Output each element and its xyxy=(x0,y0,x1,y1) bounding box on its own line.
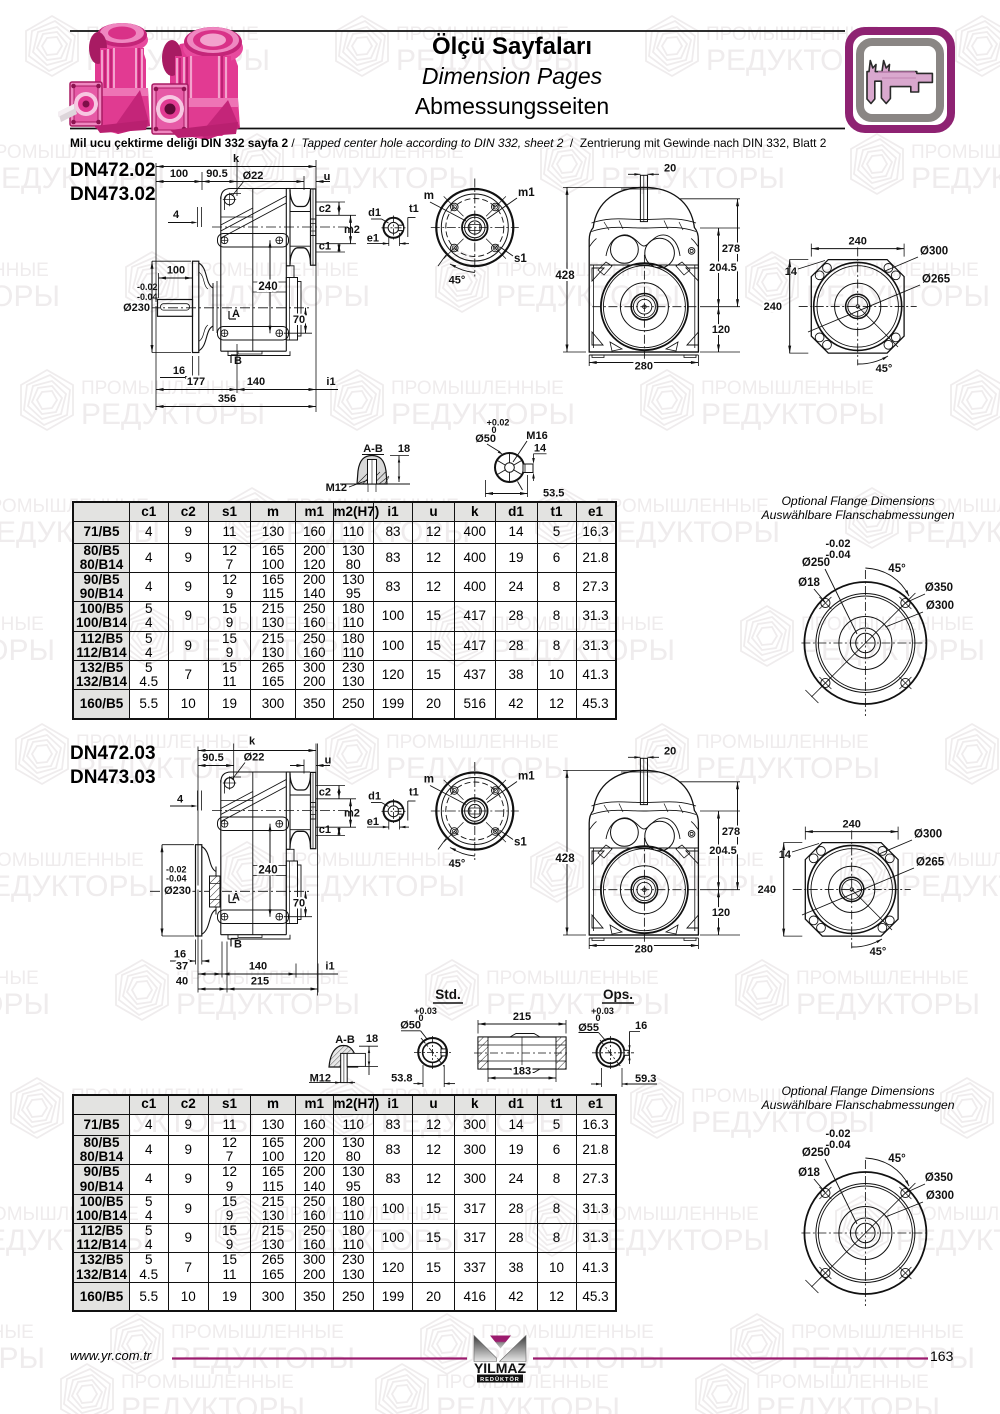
svg-text:k: k xyxy=(233,153,240,165)
svg-text:-0.04: -0.04 xyxy=(166,874,187,884)
svg-text:16: 16 xyxy=(635,1020,647,1032)
svg-text:16: 16 xyxy=(174,949,186,961)
svg-text:204.5: 204.5 xyxy=(709,845,737,857)
svg-text:РЕДУКТОРЫ: РЕДУКТОРЫ xyxy=(801,634,985,667)
svg-text:i1: i1 xyxy=(326,376,335,388)
svg-text:YILMAZ: YILMAZ xyxy=(474,1360,527,1376)
svg-text:Ø230: Ø230 xyxy=(123,302,150,314)
svg-text:40: 40 xyxy=(176,976,188,988)
svg-text:-0.02: -0.02 xyxy=(137,282,158,292)
svg-text:Ø265: Ø265 xyxy=(916,857,945,869)
svg-text:РЕДУКТОРЫ: РЕДУКТОРЫ xyxy=(0,988,50,1021)
svg-text:B: B xyxy=(234,355,242,367)
svg-text:70: 70 xyxy=(293,898,305,910)
svg-text:u: u xyxy=(324,171,331,183)
svg-text:m1: m1 xyxy=(518,187,535,199)
svg-text:s1: s1 xyxy=(514,837,527,849)
svg-text:m2: m2 xyxy=(344,808,360,820)
svg-text:-0.04: -0.04 xyxy=(137,292,158,302)
svg-text:53.5: 53.5 xyxy=(543,488,564,500)
svg-text:Ø265: Ø265 xyxy=(922,274,951,286)
svg-text:215: 215 xyxy=(513,1011,531,1023)
svg-text:280: 280 xyxy=(635,361,653,373)
svg-text:РЕДУКТОРЫ: РЕДУКТОРЫ xyxy=(901,870,1000,903)
svg-text:ПРОМЫШЛЕННЫЕ: ПРОМЫШЛЕННЫЕ xyxy=(756,1372,929,1393)
svg-text:428: 428 xyxy=(555,270,575,282)
svg-text:m1: m1 xyxy=(518,771,535,783)
svg-text:240: 240 xyxy=(764,301,782,313)
svg-text:240: 240 xyxy=(258,281,277,293)
svg-text:t1: t1 xyxy=(409,787,419,799)
svg-text:4: 4 xyxy=(173,209,180,221)
svg-text:ПРОМЫШЛЕННЫЕ: ПРОМЫШЛЕННЫЕ xyxy=(696,732,869,753)
svg-text:s1: s1 xyxy=(514,253,527,265)
svg-text:204.5: 204.5 xyxy=(709,262,737,274)
svg-text:280: 280 xyxy=(635,944,653,956)
svg-text:240: 240 xyxy=(843,819,861,831)
svg-text:Ø300: Ø300 xyxy=(920,246,948,258)
svg-text:ПРОМЫШЛЕННЫЕ: ПРОМЫШЛЕННЫЕ xyxy=(281,850,454,871)
svg-text:REDÜKTÖR: REDÜKTÖR xyxy=(480,1376,520,1383)
svg-text:РЕДУКТОРЫ: РЕДУКТОРЫ xyxy=(911,162,1000,195)
svg-text:ПРОМЫШЛЕННЫЕ: ПРОМЫШЛЕННЫЕ xyxy=(796,968,969,989)
svg-text:РЕДУКТОРЫ: РЕДУКТОРЫ xyxy=(386,752,570,785)
svg-text:356: 356 xyxy=(218,393,236,405)
svg-text:14: 14 xyxy=(534,443,547,455)
svg-text:РЕДУКТОРЫ: РЕДУКТОРЫ xyxy=(601,162,785,195)
svg-text:ПРОМЫШЛЕННЫЕ: ПРОМЫШЛЕННЫЕ xyxy=(0,614,44,635)
svg-text:140: 140 xyxy=(247,376,265,388)
svg-text:20: 20 xyxy=(664,746,676,758)
svg-text:m: m xyxy=(424,774,434,786)
svg-text:e1: e1 xyxy=(367,233,379,245)
svg-text:РЕДУКТОРЫ: РЕДУКТОРЫ xyxy=(696,752,880,785)
svg-text:A: A xyxy=(232,892,240,904)
svg-text:t1: t1 xyxy=(409,203,419,215)
svg-text:A-B: A-B xyxy=(363,443,383,455)
svg-text:РЕДУКТОРЫ: РЕДУКТОРЫ xyxy=(176,988,360,1021)
svg-text:428: 428 xyxy=(555,853,575,865)
svg-text:16: 16 xyxy=(173,365,185,377)
svg-text:РЕДУКТОРЫ: РЕДУКТОРЫ xyxy=(391,398,575,431)
svg-text:c2: c2 xyxy=(319,203,331,215)
svg-text:Ø50: Ø50 xyxy=(475,433,496,445)
svg-text:Ø230: Ø230 xyxy=(164,885,191,897)
svg-text:ПРОМЫШЛЕННЫЕ: ПРОМЫШЛЕННЫЕ xyxy=(0,850,144,871)
svg-text:c2: c2 xyxy=(319,787,331,799)
svg-text:53.8: 53.8 xyxy=(391,1073,412,1085)
svg-text:d1: d1 xyxy=(368,207,381,219)
svg-text:45°: 45° xyxy=(870,946,887,958)
svg-text:Ø300: Ø300 xyxy=(926,1190,954,1202)
svg-text:45°: 45° xyxy=(888,563,906,575)
svg-text:45°: 45° xyxy=(888,1153,906,1165)
svg-text:Ø300: Ø300 xyxy=(914,829,942,841)
svg-text:Ø18: Ø18 xyxy=(798,577,820,589)
svg-text:u: u xyxy=(325,755,332,767)
svg-text:m2: m2 xyxy=(344,224,360,236)
svg-text:ПРОМЫШЛЕННЫЕ: ПРОМЫШЛЕННЫЕ xyxy=(791,1322,964,1343)
svg-text:Ø50: Ø50 xyxy=(400,1020,421,1032)
svg-text:ПРОМЫШЛЕННЫЕ: ПРОМЫШЛЕННЫЕ xyxy=(0,968,39,989)
svg-text:M16: M16 xyxy=(526,430,547,442)
svg-text:РЕДУКТОРЫ: РЕДУКТОРЫ xyxy=(796,988,980,1021)
svg-text:РЕДУКТОРЫ: РЕДУКТОРЫ xyxy=(281,870,465,903)
svg-text:Ø18: Ø18 xyxy=(798,1167,820,1179)
svg-text:B: B xyxy=(234,939,242,951)
svg-text:РЕДУКТОРЫ: РЕДУКТОРЫ xyxy=(701,398,885,431)
svg-text:Ø350: Ø350 xyxy=(925,582,953,594)
svg-text:РЕДУКТОРЫ: РЕДУКТОРЫ xyxy=(0,870,155,903)
svg-text:215: 215 xyxy=(251,976,269,988)
svg-text:18: 18 xyxy=(366,1033,378,1045)
svg-text:РЕДУКТОРЫ: РЕДУКТОРЫ xyxy=(121,1392,305,1414)
svg-text:РЕДУКТОРЫ: РЕДУКТОРЫ xyxy=(436,1392,620,1414)
svg-text:59.3: 59.3 xyxy=(635,1073,656,1085)
svg-text:+0.02: +0.02 xyxy=(487,418,510,428)
svg-text:90.5: 90.5 xyxy=(202,752,223,764)
svg-text:45°: 45° xyxy=(449,275,466,287)
svg-text:100: 100 xyxy=(167,265,185,277)
svg-text:k: k xyxy=(249,736,256,748)
svg-text:ПРОМЫШЛЕННЫЕ: ПРОМЫШЛЕННЫЕ xyxy=(486,968,659,989)
svg-text:m: m xyxy=(424,190,434,202)
svg-text:РЕДУКТОРЫ: РЕДУКТОРЫ xyxy=(756,1392,940,1414)
svg-text:i1: i1 xyxy=(325,961,334,973)
svg-text:Ø22: Ø22 xyxy=(244,752,265,764)
svg-text:ПРОМЫШЛЕННЫЕ: ПРОМЫШЛЕННЫЕ xyxy=(391,378,564,399)
svg-text:РЕДУКТОРЫ: РЕДУКТОРЫ xyxy=(81,398,265,431)
svg-text:240: 240 xyxy=(849,236,867,248)
svg-text:ПРОМЫШЛЕННЫЕ: ПРОМЫШЛЕННЫЕ xyxy=(186,260,359,281)
svg-text:177: 177 xyxy=(187,376,205,388)
svg-text:Ø300: Ø300 xyxy=(926,600,954,612)
svg-text:d1: d1 xyxy=(368,791,381,803)
svg-text:ПРОМЫШЛЕННЫЕ: ПРОМЫШЛЕННЫЕ xyxy=(171,1322,344,1343)
svg-text:A-B: A-B xyxy=(335,1034,355,1046)
svg-text:90.5: 90.5 xyxy=(206,168,227,180)
svg-text:РЕДУКТОРЫ: РЕДУКТОРЫ xyxy=(0,1342,45,1375)
svg-text:e1: e1 xyxy=(367,816,379,828)
svg-text:45°: 45° xyxy=(449,858,466,870)
svg-text:240: 240 xyxy=(258,865,277,877)
svg-text:Ø22: Ø22 xyxy=(243,170,264,182)
svg-text:4: 4 xyxy=(177,794,184,806)
svg-text:ПРОМЫШЛЕННЫЕ: ПРОМЫШЛЕННЫЕ xyxy=(386,732,559,753)
svg-text:ПРОМЫШЛЕННЫЕ: ПРОМЫШЛЕННЫЕ xyxy=(911,142,1000,163)
svg-text:278: 278 xyxy=(722,826,740,838)
svg-text:Ø350: Ø350 xyxy=(925,1172,953,1184)
svg-text:37: 37 xyxy=(176,961,188,973)
svg-text:278: 278 xyxy=(722,243,740,255)
svg-text:c1: c1 xyxy=(319,824,331,836)
svg-text:Ops.: Ops. xyxy=(603,987,633,1002)
svg-text:20: 20 xyxy=(664,163,676,175)
svg-text:M12: M12 xyxy=(326,482,347,494)
svg-text:РЕДУКТОРЫ: РЕДУКТОРЫ xyxy=(291,162,475,195)
svg-text:120: 120 xyxy=(712,907,730,919)
svg-text:c1: c1 xyxy=(319,241,331,253)
svg-text:ПРОМЫШЛЕННЫЕ: ПРОМЫШЛЕННЫЕ xyxy=(121,1372,294,1393)
svg-text:18: 18 xyxy=(398,443,410,455)
svg-text:120: 120 xyxy=(712,324,730,336)
svg-text:70: 70 xyxy=(293,314,305,326)
svg-text:14: 14 xyxy=(785,266,798,278)
svg-text:140: 140 xyxy=(249,961,267,973)
svg-text:ПРОМЫШЛЕННЫЕ: ПРОМЫШЛЕННЫЕ xyxy=(701,378,874,399)
svg-text:45°: 45° xyxy=(876,363,893,375)
svg-text:ПРОМЫШЛЕННЫЕ: ПРОМЫШЛЕННЫЕ xyxy=(0,1322,34,1343)
svg-text:РЕДУКТОРЫ: РЕДУКТОРЫ xyxy=(0,634,55,667)
svg-text:Ø250: Ø250 xyxy=(802,1147,830,1159)
svg-text:ПРОМЫШЛЕННЫЕ: ПРОМЫШЛЕННЫЕ xyxy=(801,614,974,635)
svg-text:РЕДУКТОРЫ: РЕДУКТОРЫ xyxy=(0,280,60,313)
svg-text:A: A xyxy=(232,308,240,320)
svg-text:183: 183 xyxy=(513,1066,531,1078)
svg-text:Std.: Std. xyxy=(435,987,461,1002)
svg-text:240: 240 xyxy=(758,884,776,896)
svg-text:ПРОМЫШЛЕННЫЕ: ПРОМЫШЛЕННЫЕ xyxy=(0,260,49,281)
svg-text:14: 14 xyxy=(779,849,792,861)
svg-text:Ø250: Ø250 xyxy=(802,557,830,569)
svg-text:100: 100 xyxy=(170,168,188,180)
